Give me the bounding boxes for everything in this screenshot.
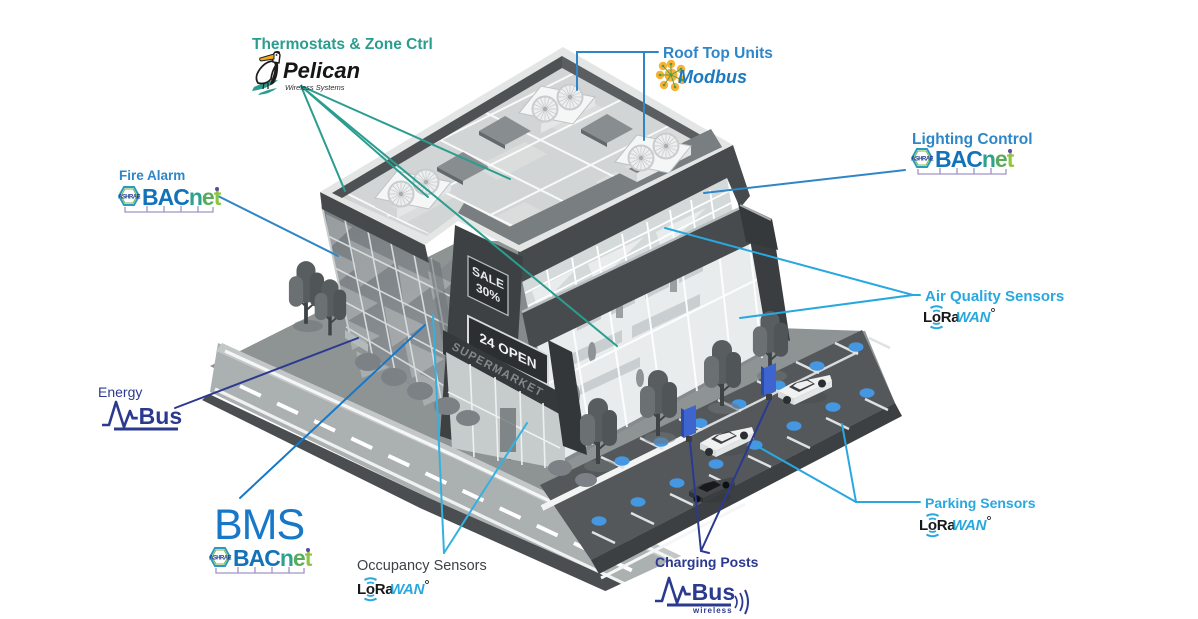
svg-text:Air Quality Sensors: Air Quality Sensors: [925, 288, 1064, 305]
svg-text:Charging Posts: Charging Posts: [655, 554, 759, 570]
svg-text:Wireless Systems: Wireless Systems: [285, 83, 345, 92]
svg-text:Roof Top Units: Roof Top Units: [663, 45, 773, 62]
svg-text:Parking Sensors: Parking Sensors: [925, 495, 1036, 511]
svg-text:Thermostats & Zone Ctrl: Thermostats & Zone Ctrl: [252, 36, 433, 53]
svg-text:Energy: Energy: [98, 384, 142, 400]
svg-text:Pelican: Pelican: [283, 58, 360, 83]
svg-text:Fire Alarm: Fire Alarm: [119, 168, 185, 183]
svg-text:Occupancy Sensors: Occupancy Sensors: [357, 558, 487, 574]
svg-text:Modbus: Modbus: [678, 67, 747, 87]
svg-text:BMS: BMS: [214, 501, 304, 549]
